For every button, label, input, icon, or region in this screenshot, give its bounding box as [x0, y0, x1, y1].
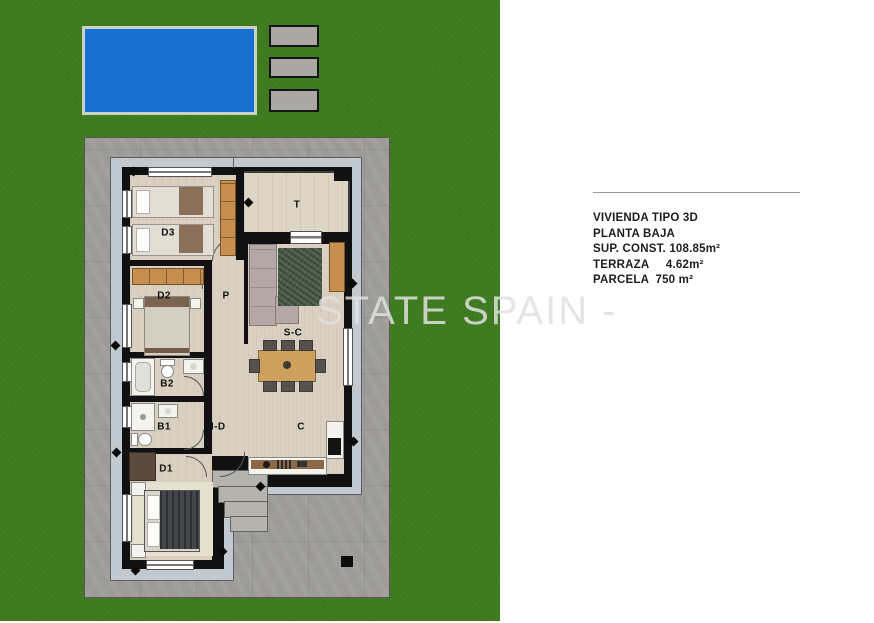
dining-chair: [315, 359, 326, 373]
entry-step-4: [230, 516, 268, 532]
toilet-bowl: [138, 433, 152, 446]
utility-box: [341, 556, 353, 567]
oven: [328, 438, 341, 455]
double-bed-d2: [144, 296, 190, 356]
floor-passage: [212, 260, 244, 344]
nightstand-d2-left: [133, 298, 144, 309]
double-bed-d1: [144, 490, 200, 552]
dining-table: [258, 350, 316, 382]
coffee-maker: [263, 461, 270, 468]
dining-chair: [281, 381, 295, 392]
pillow: [136, 190, 150, 214]
dining-chair: [263, 340, 277, 351]
sink-tray: [297, 461, 307, 467]
dining-chair: [249, 359, 260, 373]
window-d3-top: [148, 167, 212, 177]
dining-chair: [281, 340, 295, 351]
room-label-bedroom-1: D1: [159, 464, 173, 475]
shower-drain: [140, 414, 146, 420]
info-panel: VIVIENDA TIPO 3D PLANTA BAJA SUP. CONST.…: [593, 192, 823, 289]
hob-grate: [277, 460, 291, 469]
dining-chair: [263, 381, 277, 392]
blanket: [179, 187, 203, 215]
wardrobe-d2: [132, 268, 204, 285]
equipment-pad-2: [269, 57, 319, 78]
room-label-bedroom-3: D3: [161, 228, 175, 239]
swimming-pool: [82, 26, 257, 115]
equipment-pad-1: [269, 25, 319, 47]
window-living-right: [343, 328, 353, 386]
kitchen-counter: [248, 457, 327, 475]
centerpiece: [283, 361, 291, 369]
wardrobe-d1: [129, 452, 156, 481]
floor-hall: [212, 344, 248, 456]
terrace-corner-block: [334, 167, 352, 181]
pillow: [147, 522, 160, 547]
info-line-title: VIVIENDA TIPO 3D: [593, 211, 823, 227]
window-d1-bottom: [146, 560, 194, 570]
window-d2-left: [122, 304, 132, 348]
dining-chair: [299, 340, 313, 351]
sink-b2: [183, 359, 204, 374]
info-line-built-area: SUP. CONST. 108.85m²: [593, 242, 823, 258]
single-bed-1: [132, 186, 214, 218]
window-d1-left: [122, 494, 132, 542]
room-label-kitchen: C: [297, 422, 305, 433]
blanket: [179, 225, 203, 253]
sofa: [249, 244, 277, 326]
footboard: [145, 348, 189, 353]
sideboard: [329, 242, 345, 292]
divider-line: [593, 192, 800, 193]
kitchen-tall-units: [326, 421, 344, 459]
room-label-bathroom-1: B1: [157, 422, 171, 433]
room-label-bedroom-2: D2: [157, 291, 171, 302]
dining-chair: [299, 381, 313, 392]
sink-b1: [158, 404, 178, 418]
toilet-b2: [158, 359, 175, 376]
room-label-passage: P: [222, 291, 229, 302]
pillow: [136, 228, 150, 252]
info-line-terrace-area: TERRAZA 4.62m²: [593, 258, 823, 274]
pillow: [147, 495, 160, 520]
room-label-living-dining: S-C: [284, 328, 302, 339]
terrace-slider-door: [290, 231, 322, 244]
duvet: [160, 491, 199, 549]
floor-plan-page: T D3 D2 P S-C B2 B1 H-D C D1 STATE SPAIN…: [0, 0, 874, 623]
room-label-hall: H-D: [207, 422, 226, 433]
bathtub: [131, 358, 155, 396]
nightstand-d2-right: [190, 298, 201, 309]
room-label-terrace: T: [294, 200, 301, 211]
tub-basin: [135, 362, 151, 392]
sink-basin: [190, 363, 197, 370]
equipment-pad-3: [269, 89, 319, 112]
room-label-bathroom-2: B2: [160, 379, 174, 390]
toilet-b1: [131, 431, 151, 446]
info-line-plot-area: PARCELA 750 m²: [593, 273, 823, 289]
sink-basin: [165, 408, 171, 414]
toilet-tank: [131, 433, 138, 446]
shower-b1: [131, 403, 155, 431]
toilet-bowl: [161, 365, 174, 378]
wardrobe-d3: [220, 180, 236, 256]
window-d3-left-2: [122, 226, 132, 254]
info-line-floor: PLANTA BAJA: [593, 227, 823, 243]
window-d3-left-1: [122, 190, 132, 218]
watermark-text: STATE SPAIN -: [316, 289, 618, 334]
